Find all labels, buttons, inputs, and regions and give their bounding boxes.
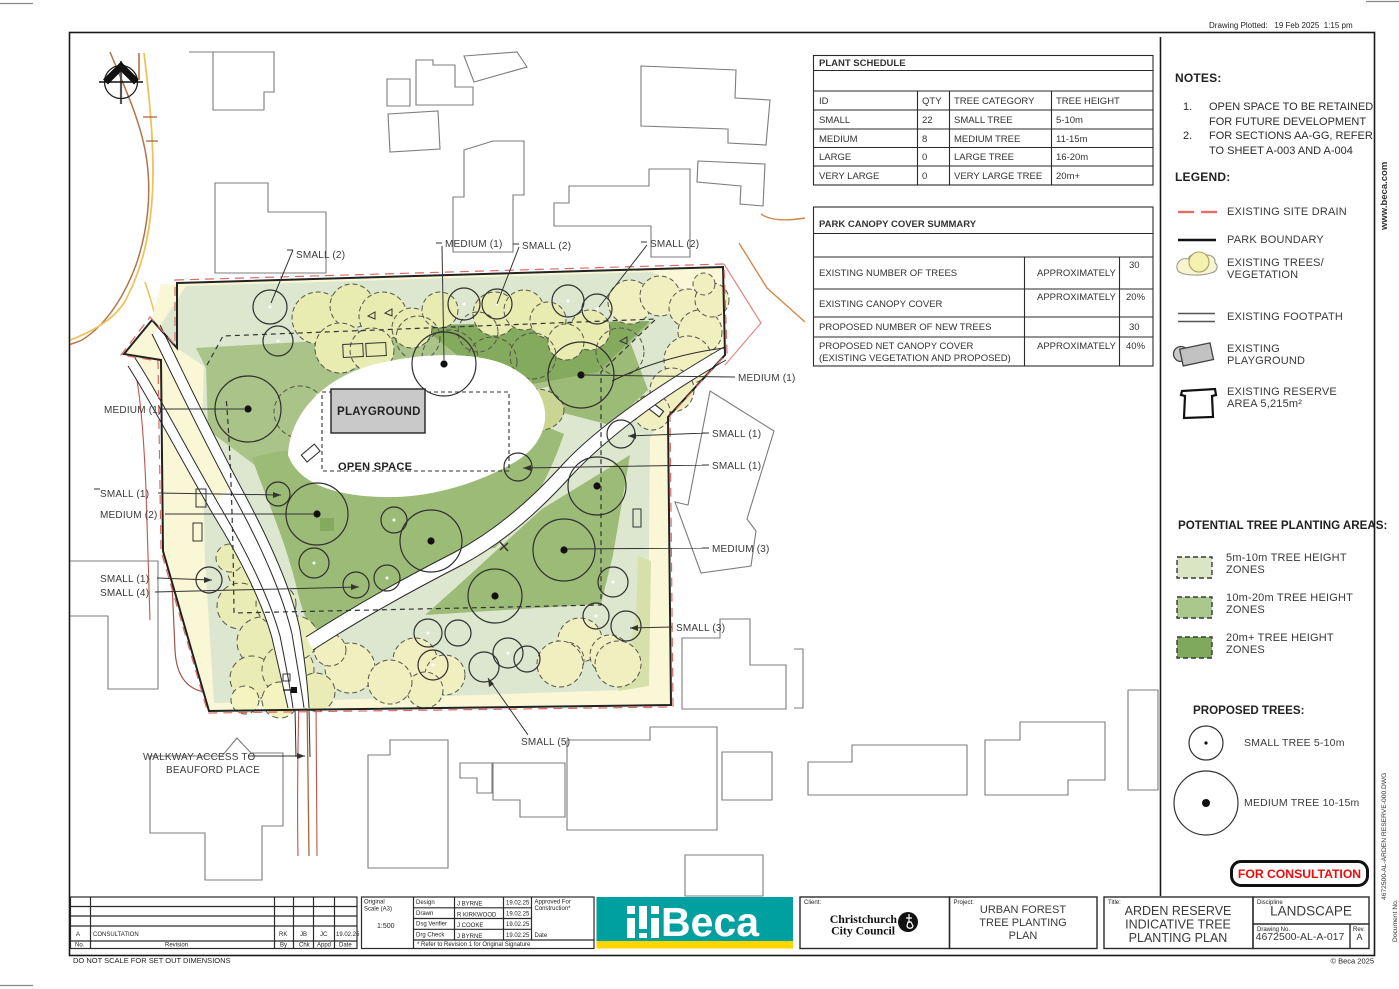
svg-text:Project:: Project: xyxy=(954,900,975,906)
svg-text:TREE PLANTING: TREE PLANTING xyxy=(979,917,1066,929)
svg-text:19.02.25: 19.02.25 xyxy=(506,912,530,918)
svg-text:* Refer to Revision 1 for Orig: * Refer to Revision 1 for Original Signa… xyxy=(417,942,531,948)
svg-text:RK: RK xyxy=(279,932,287,938)
svg-text:PLANTING PLAN: PLANTING PLAN xyxy=(1129,931,1228,945)
svg-text:J BYRNE: J BYRNE xyxy=(457,902,482,908)
svg-text:JB: JB xyxy=(300,932,307,938)
svg-text:Date: Date xyxy=(339,943,352,949)
svg-text:JC: JC xyxy=(320,932,328,938)
svg-text:J COOKE: J COOKE xyxy=(457,923,483,929)
svg-text:Dsg Verifier: Dsg Verifier xyxy=(416,922,447,928)
svg-text:Beca: Beca xyxy=(661,899,760,945)
svg-text:A: A xyxy=(76,932,80,938)
svg-text:Chk: Chk xyxy=(299,943,311,949)
svg-text:PLAN: PLAN xyxy=(1009,930,1038,942)
svg-text:R KIRKWOOD: R KIRKWOOD xyxy=(457,913,497,919)
svg-text:19.02.25: 19.02.25 xyxy=(506,901,530,907)
svg-text:© Beca 2025: © Beca 2025 xyxy=(1331,957,1374,966)
svg-text:4672500-AL-A-017: 4672500-AL-A-017 xyxy=(1256,931,1345,943)
svg-text:By: By xyxy=(280,943,287,949)
svg-text:INDICATIVE TREE: INDICATIVE TREE xyxy=(1125,918,1231,932)
svg-text:J BYRNE: J BYRNE xyxy=(457,934,482,940)
svg-text:19.02.25: 19.02.25 xyxy=(336,932,360,938)
svg-text:LANDSCAPE: LANDSCAPE xyxy=(1270,904,1352,919)
svg-text:Date: Date xyxy=(535,933,548,939)
svg-text:Scale (A3): Scale (A3) xyxy=(364,907,392,913)
svg-text:Title:: Title: xyxy=(1108,900,1121,906)
svg-text:Revision: Revision xyxy=(165,943,188,949)
svg-text:DO NOT SCALE FOR SET OUT DIMEN: DO NOT SCALE FOR SET OUT DIMENSIONS xyxy=(73,956,231,965)
svg-text:No.: No. xyxy=(75,943,85,949)
svg-text:City Council: City Council xyxy=(831,924,896,938)
svg-text:19.02.25: 19.02.25 xyxy=(506,922,530,928)
svg-text:Client:: Client: xyxy=(804,900,821,906)
svg-text:ARDEN RESERVE: ARDEN RESERVE xyxy=(1125,904,1232,918)
svg-text:CONSULTATION: CONSULTATION xyxy=(93,932,139,938)
svg-text:19.02.25: 19.02.25 xyxy=(506,933,530,939)
svg-text:1:500: 1:500 xyxy=(377,923,395,930)
svg-text:Original: Original xyxy=(364,900,385,906)
svg-text:Drg Check: Drg Check xyxy=(416,933,445,939)
svg-text:URBAN FOREST: URBAN FOREST xyxy=(980,904,1066,916)
svg-text:Approved For: Approved For xyxy=(535,900,571,906)
svg-text:Appd: Appd xyxy=(317,943,331,949)
svg-text:A: A xyxy=(1356,932,1362,942)
svg-text:Construction*: Construction* xyxy=(535,906,572,912)
svg-text:Design: Design xyxy=(416,900,435,906)
svg-text:Drawn: Drawn xyxy=(416,911,433,917)
